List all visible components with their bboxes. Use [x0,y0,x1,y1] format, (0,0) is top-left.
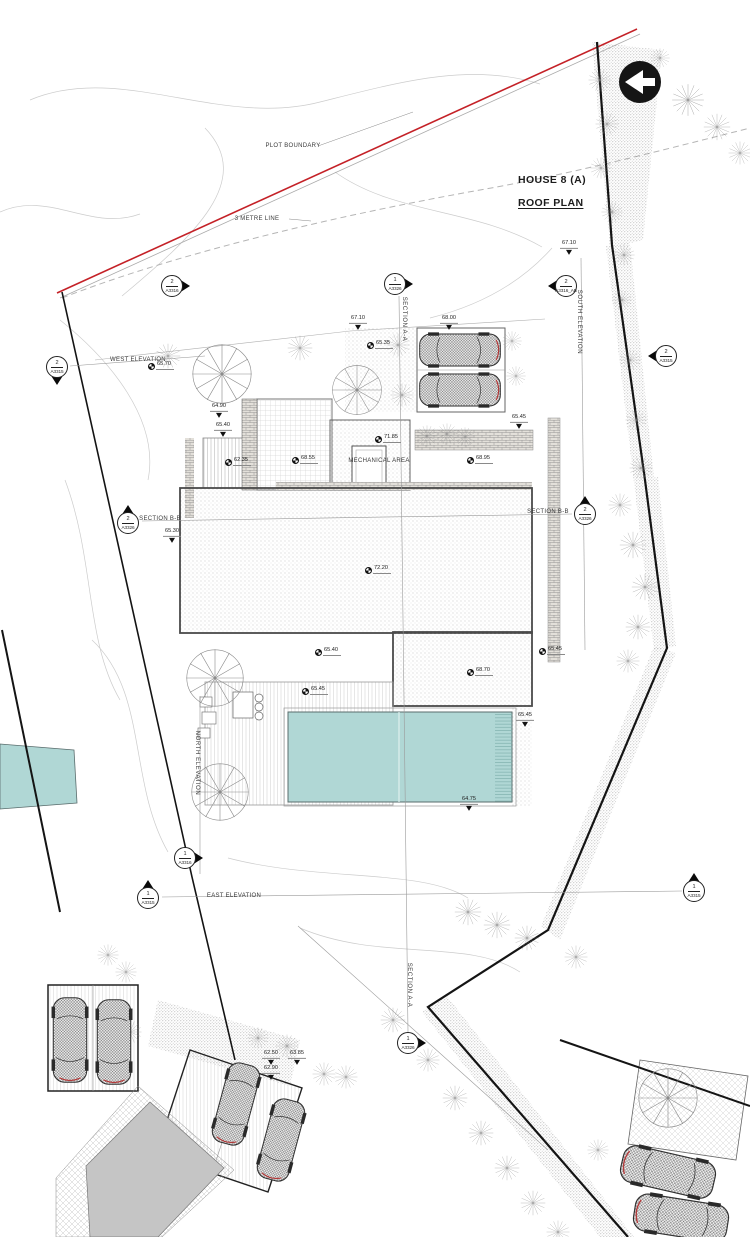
spot-level: 65.40 [315,648,341,656]
spot-level: 67.10 [560,241,578,255]
spot-level: 65.40 [214,423,232,437]
level-triangle-icon [216,412,222,417]
spot-level: 62.50 [262,1051,280,1065]
south-elevation-label: SOUTH ELEVATION [576,290,582,354]
level-pinwheel-icon [365,567,372,574]
section-bb-label: SECTION B-B [139,516,181,522]
level-triangle-icon [516,423,522,428]
reference-marker: 1A3315 [137,887,159,909]
reference-marker: 2A3316_AB [555,275,577,297]
spot-level: 68.70 [467,668,493,676]
reference-marker: 2A3326 [574,503,596,525]
spot-level: 64.75 [460,797,478,811]
spot-level: 72.20 [365,566,391,574]
spot-level: 65.45 [539,647,565,655]
level-triangle-icon [220,431,226,436]
level-pinwheel-icon [375,436,382,443]
reference-marker: 2A3326 [117,512,139,534]
level-triangle-icon [466,805,472,810]
level-triangle-icon [268,1059,274,1064]
roof-plan-drawing: HOUSE 8 (A) ROOF PLAN PLOT BOUNDARY3 MET… [0,0,750,1237]
mechanical-area-label: MECHANICAL AREA [348,458,409,464]
level-triangle-icon [566,249,572,254]
reference-marker: 1A3315 [683,880,705,902]
east-elevation-label: EAST ELEVATION [207,893,261,899]
spot-level: 65.45 [516,713,534,727]
spot-level: 65.35 [367,341,393,349]
level-triangle-icon [446,324,452,329]
level-triangle-icon [355,324,361,329]
annotation-layer: PLOT BOUNDARY3 METRE LINEWEST ELEVATIONS… [0,0,750,1237]
level-triangle-icon [169,537,175,542]
reference-marker: 1A3326 [384,273,406,295]
section-bb-label: SECTION B-B [527,509,569,515]
spot-level: 65.45 [510,415,528,429]
level-pinwheel-icon [292,457,299,464]
reference-marker: 1A3316 [174,847,196,869]
plot-boundary-label: PLOT BOUNDARY [265,143,320,149]
level-pinwheel-icon [539,648,546,655]
reference-marker: 2A3315 [46,356,68,378]
reference-marker: 2A3315 [655,345,677,367]
spot-level: 68.55 [292,456,318,464]
level-triangle-icon [522,721,528,726]
drawing-title-block: HOUSE 8 (A) ROOF PLAN [518,174,586,209]
house-title: HOUSE 8 (A) [518,174,586,186]
level-pinwheel-icon [467,457,474,464]
level-triangle-icon [294,1059,300,1064]
level-pinwheel-icon [315,649,322,656]
reference-marker: 1A3326 [397,1032,419,1054]
section-aa-label: SECTION A-A [401,297,407,342]
spot-level: 62.90 [262,1066,280,1080]
spot-level: 62.35 [225,458,251,466]
spot-level: 64.90 [210,404,228,418]
spot-level: 67.10 [349,316,367,330]
level-triangle-icon [268,1074,274,1079]
level-pinwheel-icon [367,342,374,349]
spot-level: 68.00 [440,316,458,330]
level-pinwheel-icon [302,688,309,695]
section-aa-label: SECTION A-A [406,963,412,1008]
north-elevation-label: NORTH ELEVATION [194,731,200,796]
spot-level: 65.70 [148,362,174,370]
level-pinwheel-icon [148,363,155,370]
spot-level: 63.85 [288,1051,306,1065]
three-metre-line-label: 3 METRE LINE [235,216,280,222]
spot-level: 71.85 [375,435,401,443]
spot-level: 65.30 [163,529,181,543]
spot-level: 65.45 [302,687,328,695]
reference-marker: 2A3316 [161,275,183,297]
level-pinwheel-icon [467,669,474,676]
plan-title: ROOF PLAN [518,197,586,209]
level-pinwheel-icon [225,459,232,466]
spot-level: 68.95 [467,456,493,464]
